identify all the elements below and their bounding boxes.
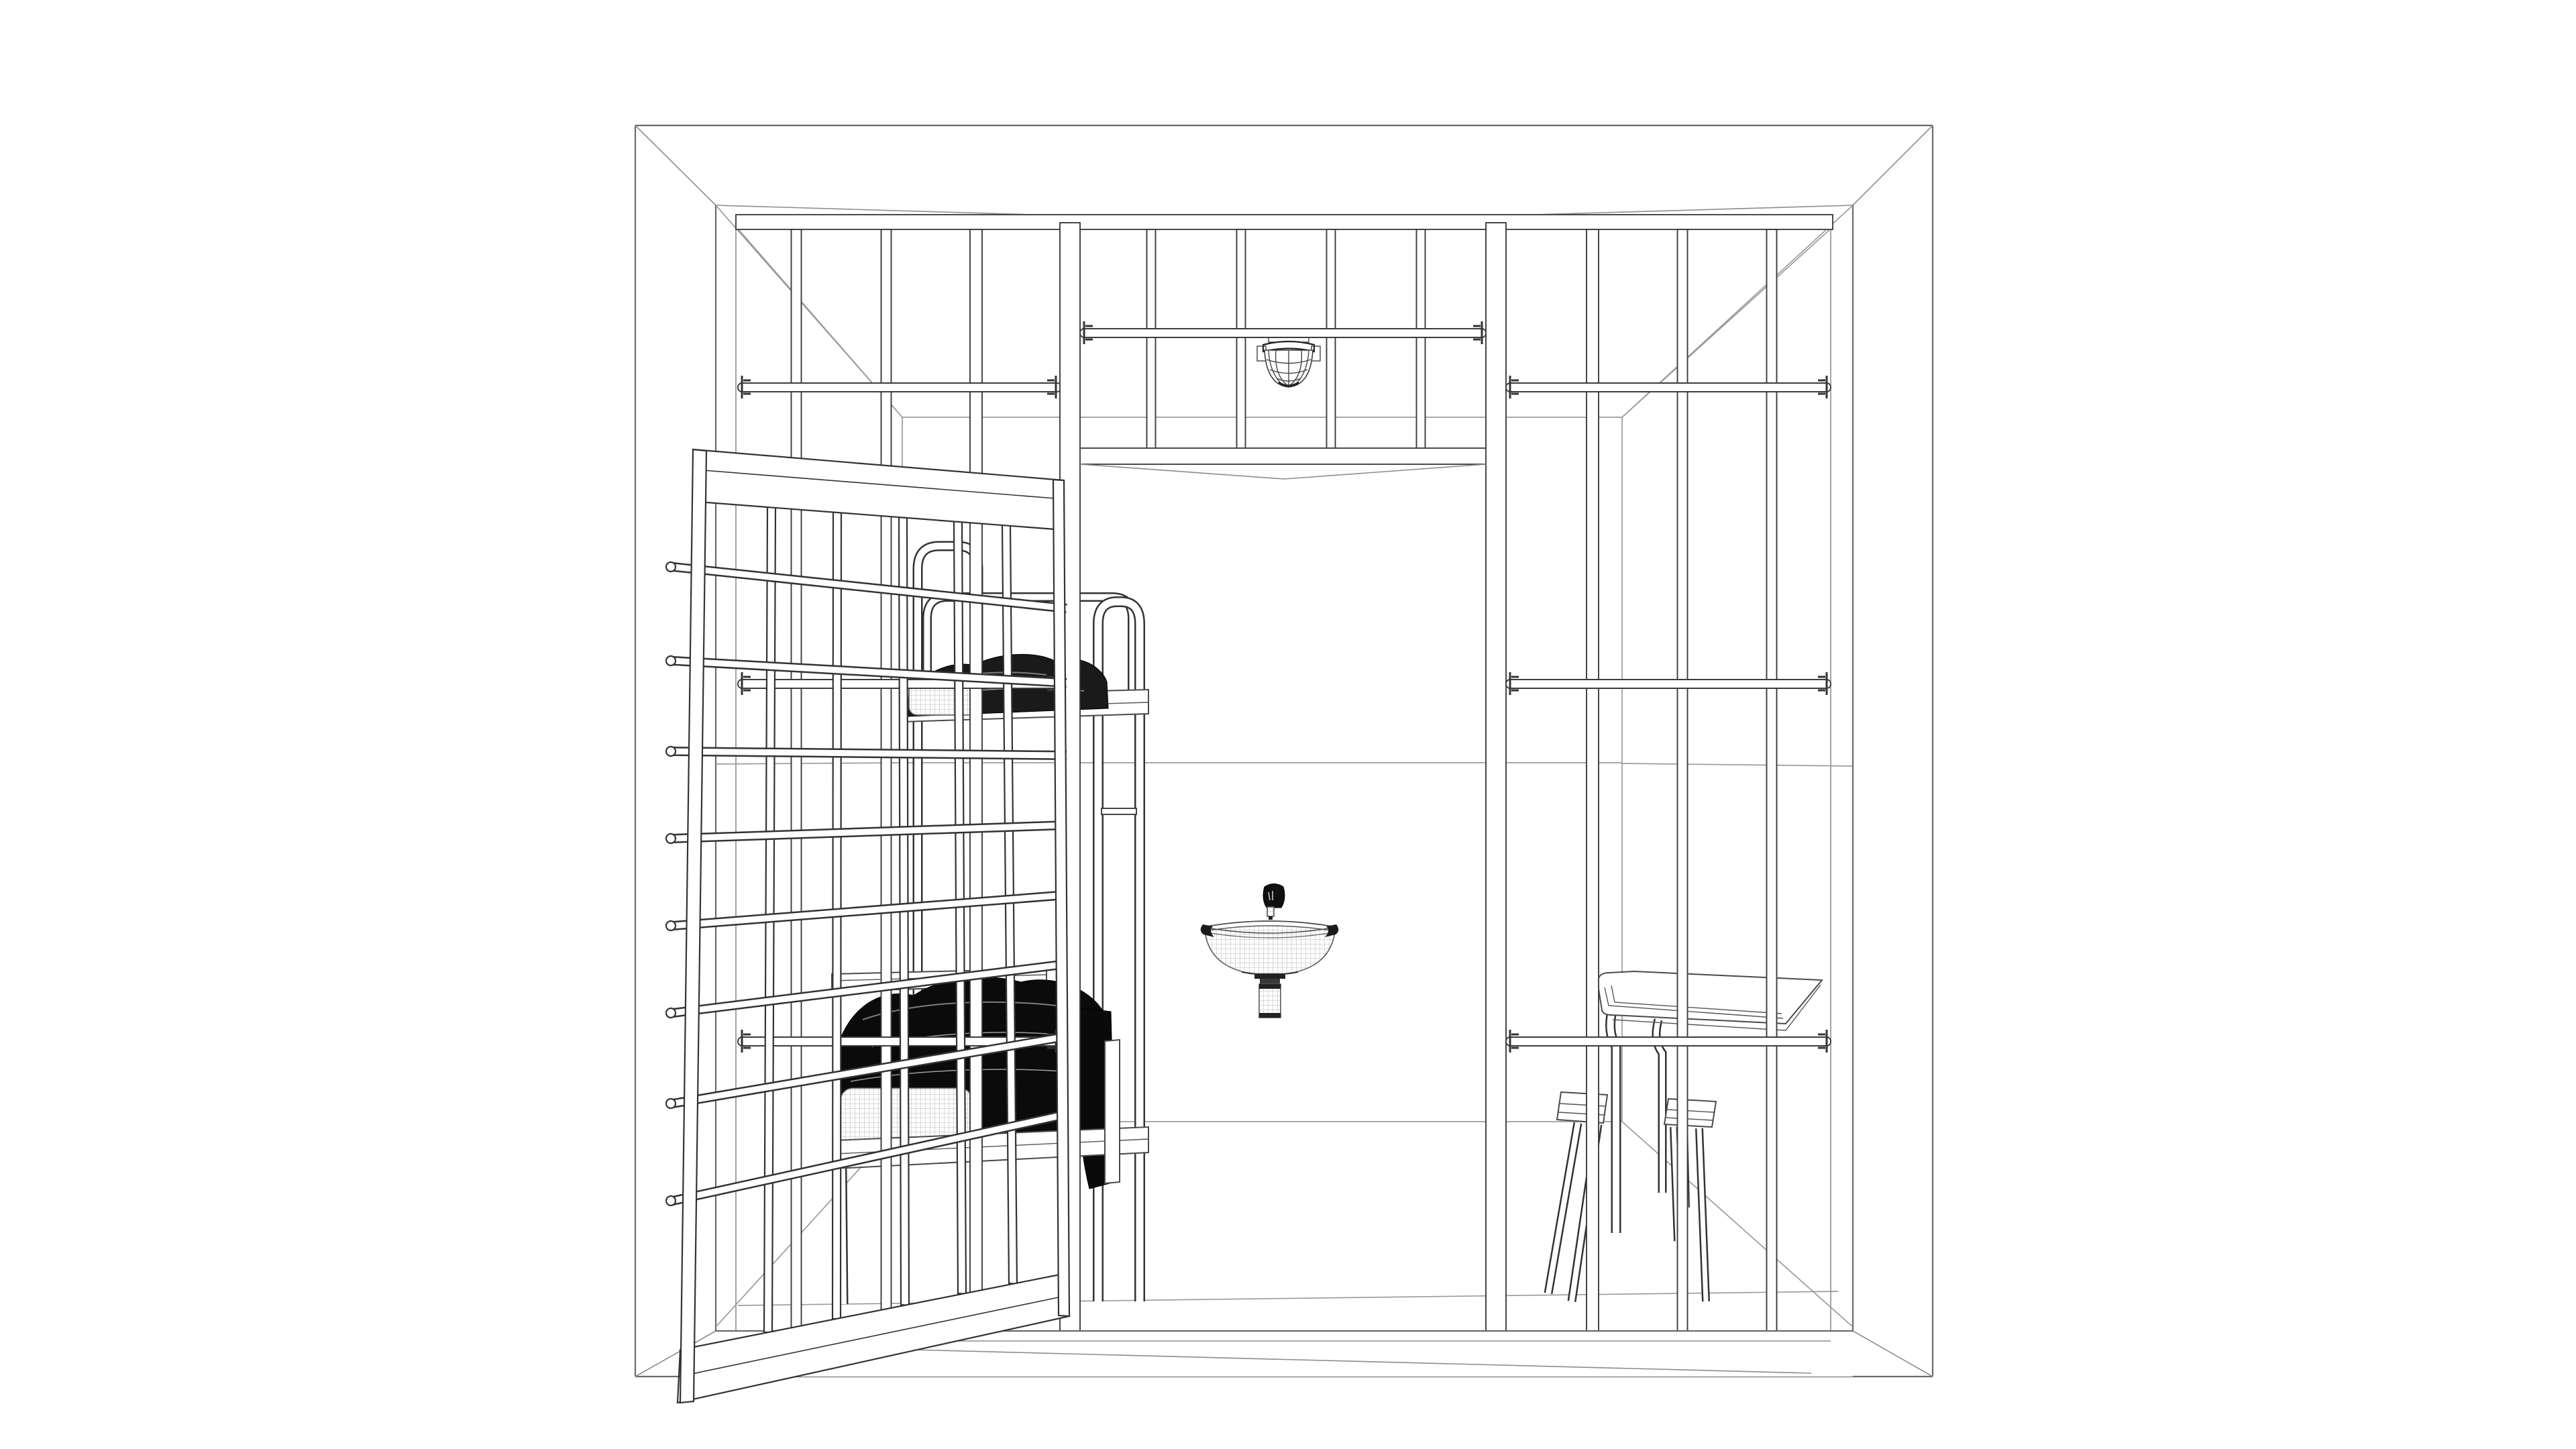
bar [881, 229, 892, 1331]
ceiling-lamp [1257, 335, 1320, 387]
wireframe-render-canvas: Monochrome 3D wireframe line rendering o… [0, 0, 2576, 1449]
stool-right [1664, 1099, 1716, 1301]
bar [1327, 229, 1336, 449]
top-beam [736, 215, 1833, 229]
cell-bar-wall [716, 215, 1853, 1377]
bar [1587, 229, 1599, 1331]
bunk-bed [832, 546, 1148, 1304]
bar [1678, 229, 1688, 1331]
sink [1201, 884, 1339, 1018]
ladder-rung [1102, 808, 1136, 814]
bar [792, 229, 802, 1331]
rail [1506, 1037, 1831, 1046]
rail [738, 383, 1061, 392]
cell-door [666, 449, 1069, 1403]
bar [1237, 229, 1246, 449]
bar [1767, 229, 1777, 1331]
rail [1506, 383, 1831, 392]
bars-right-panel [1506, 229, 1831, 1331]
faucet-icon [1263, 884, 1285, 908]
rail [1506, 680, 1831, 688]
rail [1080, 329, 1486, 337]
prison-cell-wireframe [0, 0, 2576, 1449]
door-jamb-post-right [1486, 223, 1506, 1331]
doorway-header [1080, 448, 1486, 464]
bar [1147, 229, 1156, 449]
door-top-rail [693, 449, 1064, 530]
bar [1417, 229, 1426, 449]
bar [970, 229, 982, 1331]
